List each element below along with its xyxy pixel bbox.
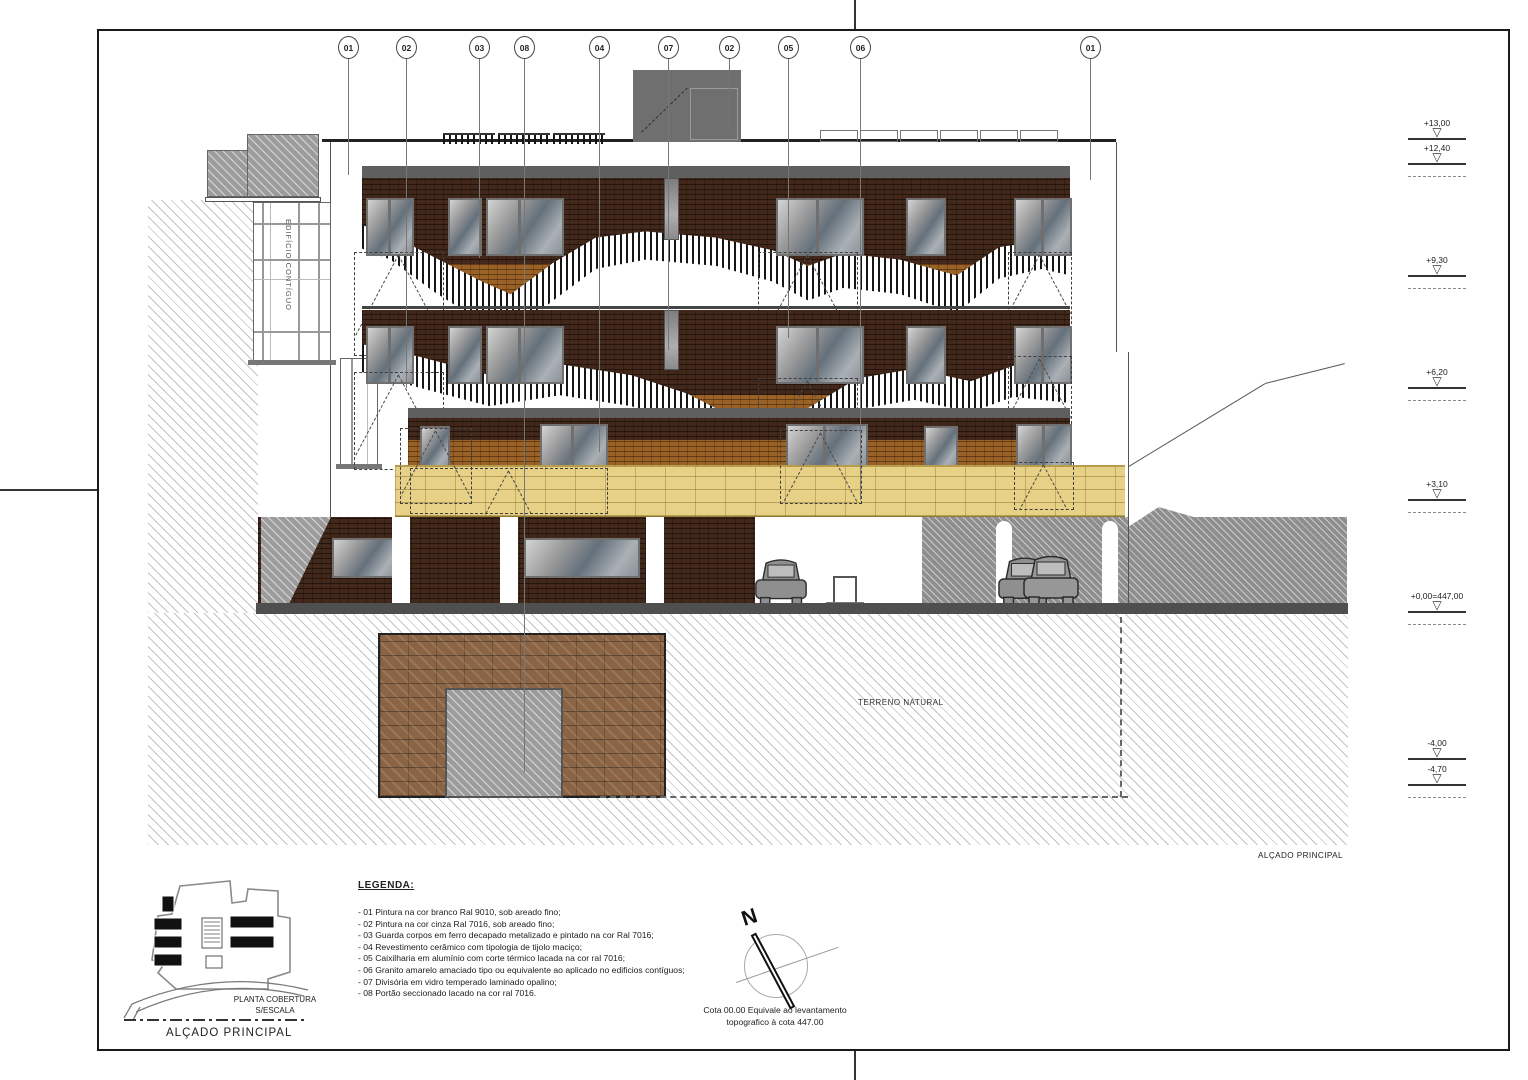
window <box>1014 198 1072 256</box>
solar-frame <box>860 130 898 142</box>
window <box>448 198 482 256</box>
roof-box-panel <box>690 88 738 140</box>
mullion <box>318 203 320 361</box>
callout-leader <box>599 58 600 452</box>
legend-item: - 06 Granito amarelo amaciado tipo ou eq… <box>358 965 685 977</box>
mullion <box>262 203 264 361</box>
level-triangle-icon: ▽ <box>1408 128 1466 137</box>
legend-item: - 07 Divisória em vidro temperado lamina… <box>358 977 685 989</box>
mullion <box>298 203 300 361</box>
level-marker: +3,10▽ <box>1408 479 1466 513</box>
terrain-hatch-bottom <box>148 613 1348 845</box>
window <box>924 426 958 468</box>
compass-circle <box>744 934 808 998</box>
floor1-slab <box>408 408 1070 418</box>
callout-leader <box>479 58 480 258</box>
callout-bubble: 01 <box>1080 36 1101 59</box>
callout-leader <box>1090 58 1091 180</box>
car <box>1016 548 1086 606</box>
legend-item: - 01 Pintura na cor branco Ral 9010, sob… <box>358 907 685 919</box>
level-triangle-icon: ▽ <box>1408 153 1466 162</box>
solar-panel <box>553 133 605 144</box>
callout-bubble: 08 <box>514 36 535 59</box>
level-marker: +0,00=447,00▽ <box>1408 591 1466 625</box>
slit-window <box>664 310 679 370</box>
car <box>750 552 812 606</box>
crop-mark-bottom <box>854 1051 856 1080</box>
roof-plan-caption: ALÇADO PRINCIPAL <box>166 1027 292 1039</box>
roof-access-box <box>633 70 741 142</box>
window <box>776 198 864 256</box>
callout-bubble: 02 <box>719 36 740 59</box>
level-marker: -4,00▽ <box>1408 738 1466 760</box>
legend-title: LEGENDA: <box>358 880 685 891</box>
brick-light-course <box>408 440 1070 467</box>
window-mullion <box>518 200 521 254</box>
opening-dashed <box>1014 462 1074 510</box>
column <box>1102 521 1118 604</box>
legend-item: - 04 Revestimento cerâmico com tipologia… <box>358 942 685 954</box>
section-dashdot-line <box>124 1019 308 1021</box>
opening-dashed <box>410 468 608 514</box>
level-triangle-icon: ▽ <box>1408 265 1466 274</box>
window <box>540 424 608 470</box>
level-triangle-icon: ▽ <box>1408 601 1466 610</box>
terreno-natural-label: TERRENO NATURAL <box>858 698 944 707</box>
excavation-dashed-h <box>600 796 1128 798</box>
callout-bubble: 02 <box>396 36 417 59</box>
level-marker: -4,70▽ <box>1408 764 1466 798</box>
callout-bubble: 01 <box>338 36 359 59</box>
window-mullion <box>1042 426 1045 466</box>
window-mullion <box>816 200 819 254</box>
garage-slot-window <box>332 538 398 578</box>
basement-door <box>445 688 563 798</box>
legend-item: - 03 Guarda corpos em ferro decapado met… <box>358 930 685 942</box>
window <box>486 198 564 256</box>
solar-frame <box>940 130 978 142</box>
column <box>392 517 410 604</box>
window-mullion <box>571 426 574 468</box>
ground-line-band <box>256 603 1348 614</box>
solar-frame <box>980 130 1018 142</box>
callout-leader <box>860 58 861 500</box>
level-marker: +12,40▽ <box>1408 143 1466 177</box>
datum-note: Cota 00.00 Equivale ao levantamento topo… <box>690 1004 860 1028</box>
window <box>776 326 864 384</box>
level-triangle-icon: ▽ <box>1408 748 1466 757</box>
legend: LEGENDA: - 01 Pintura na cor branco Ral … <box>358 880 685 1000</box>
column <box>500 517 518 604</box>
drawing-caption: ALÇADO PRINCIPAL <box>1258 851 1343 860</box>
solar-frame <box>1020 130 1058 142</box>
window-mullion <box>816 328 819 382</box>
callout-leader <box>788 58 789 338</box>
terrain-hatch-left <box>148 200 258 613</box>
opening-dashed <box>780 430 862 504</box>
existing-wall-mass <box>1128 505 1347 605</box>
callout-leader <box>348 58 349 175</box>
slit-window <box>664 178 679 240</box>
door-swing-dashed <box>641 88 688 133</box>
callout-bubble: 07 <box>658 36 679 59</box>
floor2-slab-line <box>362 306 1070 309</box>
legend-item: - 02 Pintura na cor cinza Ral 7016, sob … <box>358 919 685 931</box>
solar-frame <box>820 130 858 142</box>
callout-leader <box>406 58 407 388</box>
callout-leader <box>729 58 730 128</box>
crop-mark-left <box>0 489 97 491</box>
pedestal <box>833 576 857 604</box>
window <box>906 326 946 384</box>
legend-item: - 05 Caixilharia em alumínio com corte t… <box>358 953 685 965</box>
roof-slab-band <box>362 166 1070 178</box>
adjacent-building-label: EDIFÍCIO CONTÍGUO <box>284 219 293 351</box>
level-marker: +9,30▽ <box>1408 255 1466 289</box>
legend-item: - 08 Portão seccionado lacado na cor ral… <box>358 988 685 1000</box>
window <box>906 198 946 256</box>
level-triangle-icon: ▽ <box>1408 377 1466 386</box>
callout-leader <box>524 58 525 772</box>
level-triangle-icon: ▽ <box>1408 489 1466 498</box>
callout-bubble: 04 <box>589 36 610 59</box>
adjacent-chimney <box>207 150 248 197</box>
adjacent-chimney <box>247 134 319 197</box>
column <box>646 517 664 604</box>
solar-frame <box>900 130 938 142</box>
window <box>486 326 564 384</box>
callout-bubble: 05 <box>778 36 799 59</box>
level-triangle-icon: ▽ <box>1408 774 1466 783</box>
solar-panel <box>443 133 495 144</box>
adjacent-tower-ledge <box>248 360 336 365</box>
garage-slot-window <box>524 538 640 578</box>
callout-leader <box>668 58 669 350</box>
excavation-dashed-v <box>1120 617 1122 797</box>
callout-bubble: 06 <box>850 36 871 59</box>
window-mullion <box>1041 200 1044 254</box>
window-mullion <box>388 200 391 254</box>
mullion <box>351 359 353 465</box>
callout-bubble: 03 <box>469 36 490 59</box>
level-marker: +6,20▽ <box>1408 367 1466 401</box>
level-marker: +13,00▽ <box>1408 118 1466 140</box>
drawing-sheet: TERRENO NATURAL EDIFÍCIO CONTÍGUO <box>0 0 1528 1080</box>
floor1-brick <box>408 418 1070 467</box>
window-mullion <box>518 328 521 382</box>
mullion <box>270 203 271 361</box>
roof-plan-label: PLANTA COBERTURA S/ESCALA <box>205 994 345 1016</box>
crop-mark-top <box>854 0 856 29</box>
window <box>448 326 482 384</box>
adjacent-glazed-tower: EDIFÍCIO CONTÍGUO <box>253 202 331 362</box>
